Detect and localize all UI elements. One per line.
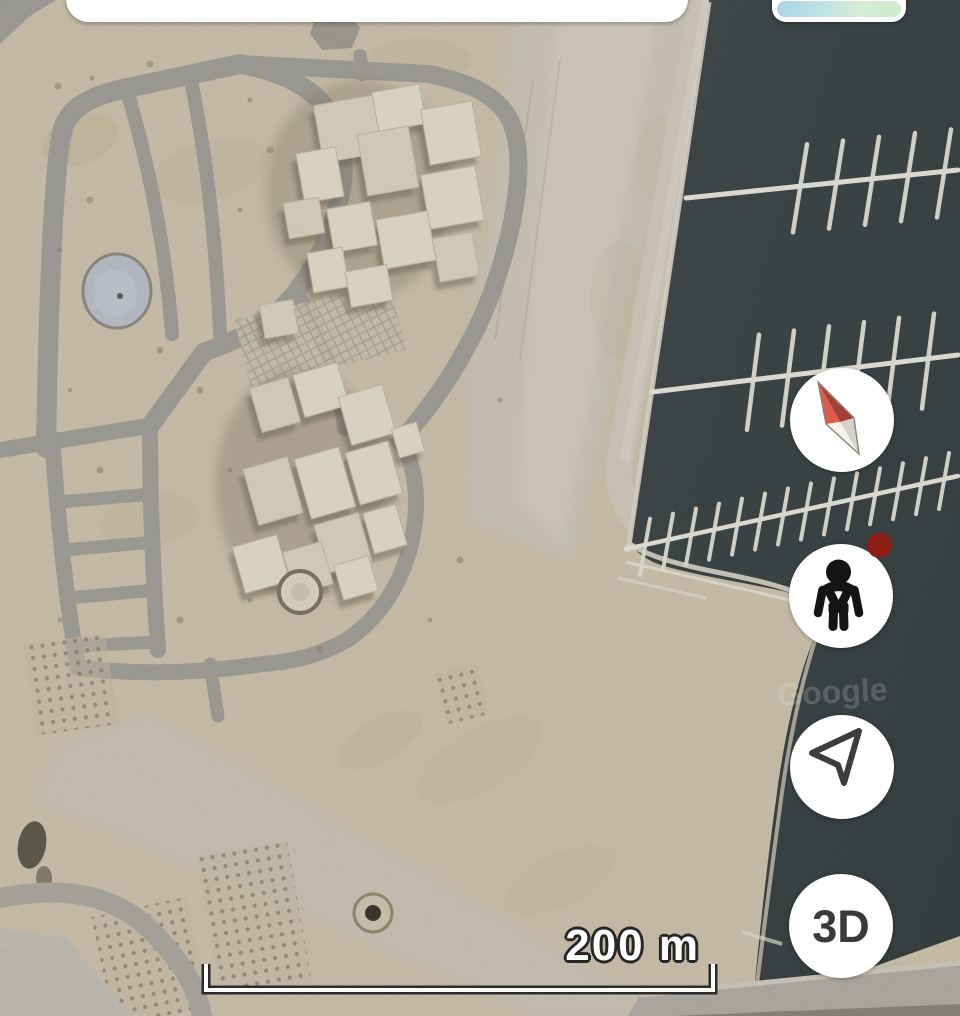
map-thumbnail <box>777 1 901 17</box>
scale-bar-label: 200 m <box>440 924 700 968</box>
3d-button-label: 3D <box>812 904 870 949</box>
my-location-button[interactable] <box>790 715 894 819</box>
layers-button[interactable] <box>772 0 906 22</box>
3d-view-button[interactable]: 3D <box>789 874 893 978</box>
compass-button[interactable] <box>790 368 894 472</box>
map-app-screen: Google <box>0 0 960 1016</box>
street-view-button[interactable] <box>789 544 893 648</box>
grain-overlay <box>0 0 960 1016</box>
satellite-map[interactable]: Google <box>0 0 960 1016</box>
pegman-icon <box>791 546 891 646</box>
street-view-badge <box>867 533 892 558</box>
search-bar[interactable] <box>66 0 688 22</box>
compass-needle-icon <box>792 370 892 470</box>
location-arrow-icon <box>792 717 892 817</box>
